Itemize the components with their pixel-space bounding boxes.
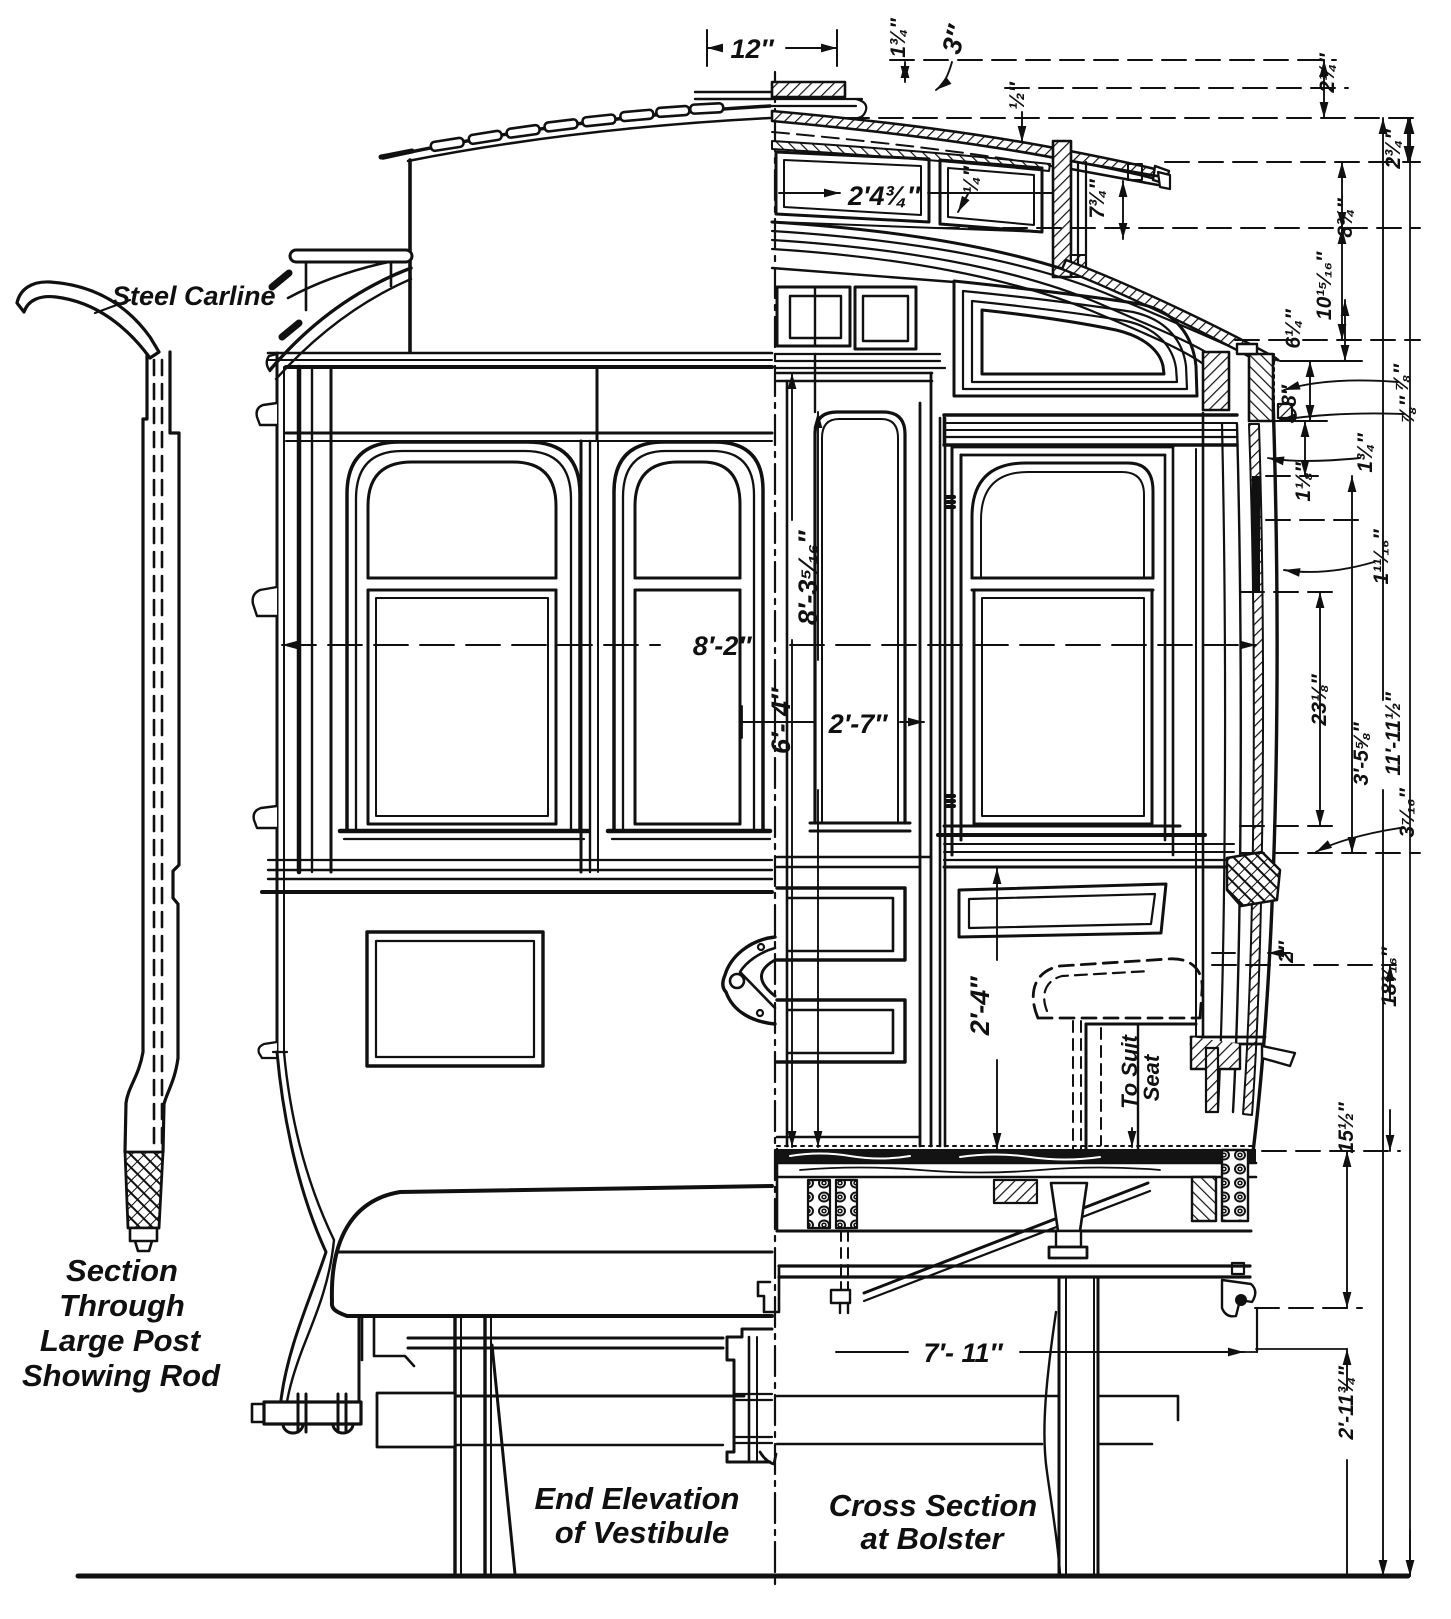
svg-text:¼″: ¼″	[960, 165, 983, 194]
svg-text:3″: 3″	[936, 21, 972, 57]
svg-text:2¾″: 2¾″	[1382, 128, 1405, 169]
svg-text:11′-11½″: 11′-11½″	[1382, 691, 1405, 775]
svg-text:of Vestibule: of Vestibule	[555, 1515, 730, 1550]
svg-text:6¼″: 6¼″	[1282, 308, 1305, 348]
svg-text:2¼″: 2¼″	[1316, 52, 1339, 93]
svg-text:Steel Carline: Steel Carline	[112, 281, 276, 311]
svg-text:7′- 11″: 7′- 11″	[924, 1338, 1004, 1368]
svg-text:8′-3⁵⁄₁₆″: 8′-3⁵⁄₁₆″	[793, 530, 823, 625]
svg-text:3⁷⁄₁₆″: 3⁷⁄₁₆″	[1396, 788, 1419, 838]
svg-text:3′-5⅝″: 3′-5⅝″	[1350, 722, 1373, 786]
svg-text:23⅛″: 23⅛″	[1308, 674, 1331, 727]
svg-text:⅞″: ⅞″	[1396, 395, 1419, 424]
svg-text:1¹¹⁄₁₆″: 1¹¹⁄₁₆″	[1370, 529, 1393, 585]
svg-text:Showing Rod: Showing Rod	[22, 1358, 221, 1393]
svg-text:Cross Section: Cross Section	[829, 1488, 1037, 1523]
svg-text:2′4¾″: 2′4¾″	[847, 181, 921, 211]
svg-text:Through: Through	[59, 1288, 185, 1323]
svg-text:Seat: Seat	[1139, 1053, 1164, 1101]
svg-text:7¾″: 7¾″	[1086, 178, 1109, 218]
svg-text:18³⁄₁₆″: 18³⁄₁₆″	[1378, 946, 1401, 1007]
svg-text:12″: 12″	[731, 34, 775, 64]
svg-text:8¾″: 8¾″	[1334, 197, 1357, 237]
svg-text:2′-4″: 2′-4″	[965, 976, 995, 1036]
svg-text:End Elevation: End Elevation	[535, 1481, 740, 1516]
svg-text:2′-11¾″: 2′-11¾″	[1335, 1366, 1358, 1441]
svg-text:1¾″: 1¾″	[1354, 432, 1377, 472]
svg-text:1¾″: 1¾″	[887, 17, 910, 57]
svg-text:1⅛″: 1⅛″	[1292, 461, 1315, 501]
svg-text:2′-7″: 2′-7″	[828, 709, 888, 739]
svg-text:6′- 4″: 6′- 4″	[766, 687, 796, 754]
svg-text:½″: ½″	[1006, 81, 1029, 110]
svg-text:⅞″: ⅞″	[1390, 363, 1413, 392]
svg-text:15½″: 15½″	[1335, 1102, 1358, 1154]
svg-text:8′-2″: 8′-2″	[693, 631, 752, 661]
svg-text:at Bolster: at Bolster	[861, 1521, 1006, 1556]
svg-text:8″: 8″	[1278, 384, 1301, 407]
svg-text:Large Post: Large Post	[40, 1323, 202, 1358]
svg-text:Section: Section	[66, 1253, 178, 1288]
svg-text:2″: 2″	[1275, 940, 1298, 964]
svg-text:10¹⁵⁄₁₆″: 10¹⁵⁄₁₆″	[1313, 251, 1336, 320]
